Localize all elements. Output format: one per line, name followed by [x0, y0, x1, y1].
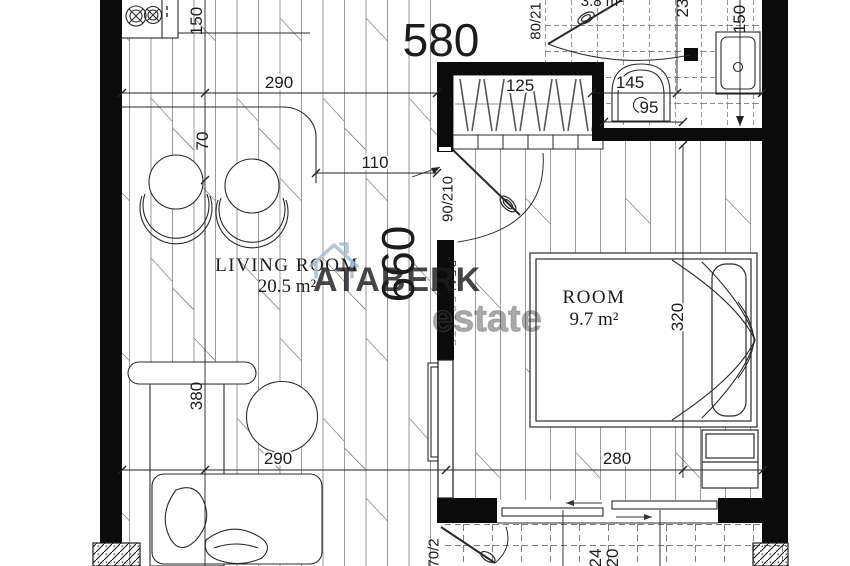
dim-hall: 110	[361, 153, 388, 172]
sliding-panel-right	[612, 501, 717, 509]
stove-icon	[120, 0, 178, 38]
sink-icon	[716, 32, 760, 94]
dim-balcony-b: 20	[603, 549, 622, 566]
dim-living-height: 380	[187, 382, 206, 410]
dim-bath-right: 150	[730, 5, 749, 33]
slide-arrow-right-icon	[616, 514, 652, 520]
column-bottom-left	[93, 543, 140, 566]
door-size-bedroom: 90/210	[439, 176, 456, 222]
watermark-real: REAL	[446, 260, 457, 296]
wall-bath-bottom	[592, 128, 762, 141]
round-table	[247, 382, 318, 453]
slide-arrow-left-icon	[566, 500, 602, 506]
dim-wardrobe: 125	[506, 76, 534, 95]
dim-bedroom-height: 320	[668, 303, 687, 331]
dim-total-width: 580	[403, 14, 480, 66]
dim-living-bottom: 290	[264, 449, 292, 468]
column-bottom-right	[753, 543, 788, 566]
dim-kitchen-top: 290	[265, 73, 293, 92]
wardrobe-shelf-band	[453, 135, 603, 149]
living-room-area: 20.5 m²	[258, 276, 317, 297]
bedroom-area: 9.7 m²	[570, 309, 619, 330]
floor-plan-drawing: 580 660 290 150 70 110 125 145 95 150 23…	[0, 0, 850, 566]
wall-right	[762, 0, 788, 543]
bedroom-name: ROOM	[562, 287, 625, 308]
door-size-bathroom: 80/21	[527, 2, 544, 40]
sofa-back	[128, 362, 256, 384]
wall-slider-jamb-left	[437, 498, 497, 523]
wall-mid-lower-outline	[438, 360, 453, 498]
dim-bath-width: 145	[616, 73, 644, 92]
door-size-balcony: 70/2	[425, 538, 442, 566]
sliding-door	[497, 500, 718, 523]
wall-slider-jamb-right	[718, 498, 763, 523]
sliding-panel-left	[502, 508, 603, 516]
floor-plan-page: 580 660 290 150 70 110 125 145 95 150 23…	[0, 0, 850, 566]
dim-stool-gap: 70	[193, 132, 212, 151]
bathroom-area-label: 3.8 m²	[581, 0, 624, 10]
wall-left	[100, 0, 122, 543]
wall-bath-door-stub	[684, 48, 698, 61]
nightstand	[702, 430, 758, 488]
wall-wardrobe-left	[437, 62, 453, 152]
bed	[530, 253, 757, 427]
dim-bath-cut: 23	[673, 0, 692, 17]
dim-bath-inner: 95	[640, 98, 659, 117]
door-stop-notch	[439, 147, 451, 151]
dim-kitchen-left: 150	[187, 7, 206, 35]
dim-bedroom-bottom: 280	[603, 449, 631, 468]
watermark-ghost-text: estate	[432, 298, 542, 340]
